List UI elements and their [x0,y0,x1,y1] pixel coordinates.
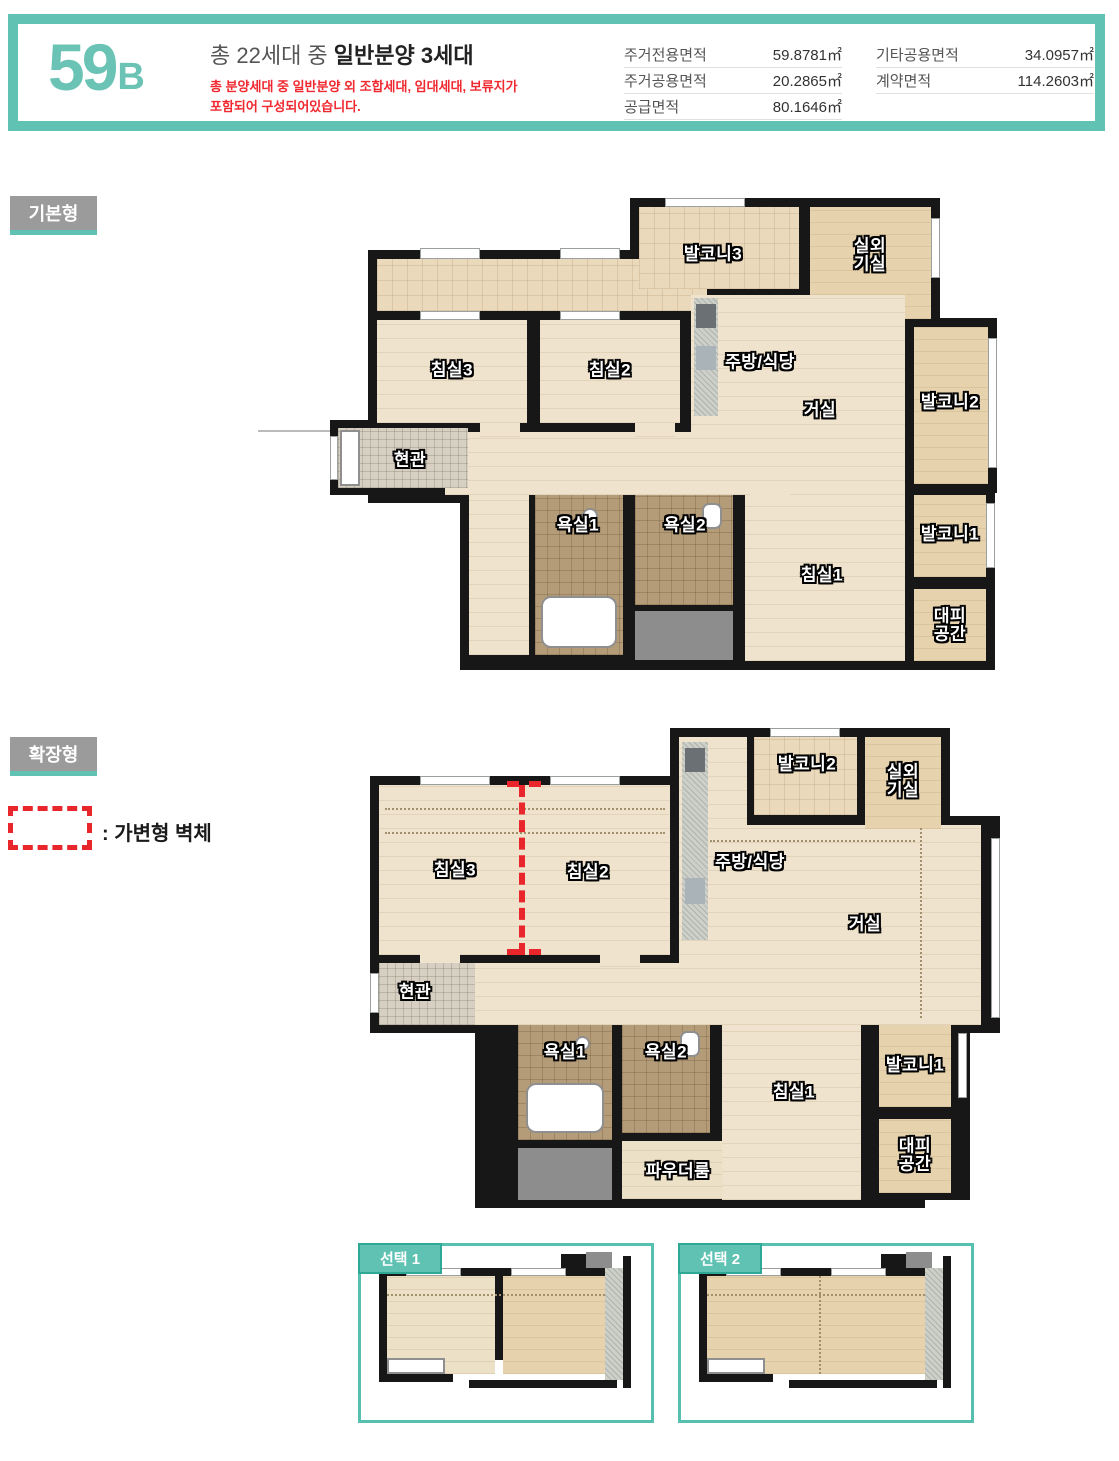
room-label-entrance: 현관 [399,978,431,1003]
area-label: 기타공용면적 [876,44,959,65]
unit-suffix: B [117,58,144,96]
window [665,198,745,207]
room-label-bedroom1: 침실1 [773,1078,815,1103]
option-box-2: 선택 2 [678,1243,974,1423]
floorplan-basic: 발코니3 실외기실 침실3 침실2 주방/식당 거실 발코니2 현관 욕실1 욕… [330,198,995,670]
duct-area [518,1148,612,1200]
unit-notice: 총 분양세대 중 일반분양 외 조합세대, 임대세대, 보류지가 포함되어 구성… [210,77,518,116]
window [420,248,480,259]
room-label-balcony2: 발코니2 [778,750,836,775]
wall [379,1268,387,1380]
stove-icon [685,748,705,772]
wall [699,1268,707,1380]
variable-wall-legend-swatch [8,806,92,850]
door-opening [635,423,675,437]
room-label-refuge: 대피공간 [895,1138,936,1175]
room-label-outdoor-unit: 실외기실 [883,764,924,801]
dashed-line [385,832,665,834]
stove-icon [696,304,716,328]
variable-wall-legend-label: : 가변형 벽체 [102,817,212,846]
bathtub-icon [526,1083,604,1133]
room-label-bath1: 욕실1 [544,1038,586,1063]
dashed-line [710,840,915,842]
unit-header: 59 B 총 22세대 중 일반분양 3세대 총 분양세대 중 일반분양 외 조… [8,14,1105,131]
room-label-bedroom2: 침실2 [589,356,631,381]
floorplan-extended: 발코니2 실외기실 침실3 침실2 주방/식당 거실 현관 욕실1 욕실2 침실… [360,728,1005,1208]
wall [789,1380,937,1388]
wall [699,1374,773,1382]
option-tab-1: 선택 1 [358,1243,442,1274]
wall-partition [495,1276,503,1360]
window [770,728,840,737]
area-value: 114.2603㎡ [1018,70,1094,91]
area-value: 80.1646㎡ [773,96,842,117]
floor-bedroom1 [722,1025,861,1200]
area-table-right: 기타공용면적 34.0957㎡ 계약면적 114.2603㎡ [876,42,1094,94]
dashed-line [920,828,922,1018]
closet [707,1358,765,1374]
room-label-refuge: 대피공간 [930,608,971,645]
room-label-kitchen-dining: 주방/식당 [715,848,785,873]
room-label-bedroom1: 침실1 [801,561,843,586]
duct-area [635,611,733,660]
window [986,503,995,568]
variable-wall-cap [507,781,541,787]
area-label: 주거전용면적 [624,44,707,65]
duct-area [906,1252,932,1268]
room-label-living: 거실 [804,396,836,421]
floor-hall [445,432,718,495]
window [988,338,997,468]
floor-kitchen-living [691,295,905,495]
area-row: 주거공용면적 20.2865㎡ [624,68,842,94]
option-tab-2: 선택 2 [678,1243,762,1274]
area-row: 기타공용면적 34.0957㎡ [876,42,1094,68]
wall [379,1374,453,1382]
room-label-bath1: 욕실1 [557,511,599,536]
dashed-line [707,1294,925,1296]
variable-wall-cap [507,949,541,955]
window [831,1268,886,1276]
room-label-balcony1: 발코니1 [886,1051,944,1076]
page: { "header": { "unit_code": { "number": "… [0,0,1119,1461]
section-line [258,430,330,432]
unit-title-prefix: 총 22세대 중 [210,43,334,68]
window [931,218,940,278]
area-row: 계약면적 114.2603㎡ [876,68,1094,94]
section-badge-extended: 확장형 [10,737,97,776]
room-label-living: 거실 [849,910,881,935]
sink-icon [696,346,716,370]
window [420,776,490,785]
entrance-door [330,436,338,480]
room-label-outdoor-unit: 실외기실 [850,238,891,275]
door-opening [480,423,520,437]
area-value: 34.0957㎡ [1025,44,1094,65]
area-row: 공급면적 80.1646㎡ [624,94,842,120]
room-label-bedroom3: 침실3 [434,856,476,881]
area-label: 주거공용면적 [624,70,707,91]
unit-notice-line2: 포함되어 구성되어있습니다. [210,97,518,117]
room-label-bedroom2: 침실2 [567,858,609,883]
kitchen-counter [925,1268,943,1380]
dashed-line [385,808,665,810]
area-value: 59.8781㎡ [773,44,842,65]
window [958,1033,967,1098]
unit-number: 59 [48,34,115,100]
floor-room-right [819,1276,925,1374]
unit-code: 59 B [48,34,145,100]
room-label-bedroom3: 침실3 [431,356,473,381]
wall [623,1256,631,1388]
window [991,838,1000,1018]
room-label-balcony1: 발코니1 [921,520,979,545]
room-label-bath2: 욕실2 [664,511,706,536]
wall [469,1380,617,1388]
window [550,776,620,785]
dashed-line [387,1294,605,1296]
closet [387,1358,445,1374]
bathtub-icon [541,596,617,648]
area-value: 20.2865㎡ [773,70,842,91]
area-label: 공급면적 [624,96,679,117]
section-badge-basic: 기본형 [10,196,97,235]
area-row: 주거전용면적 59.8781㎡ [624,42,842,68]
unit-title-emphasis: 일반분양 3세대 [334,43,474,68]
floor-lower-corridor [469,495,529,655]
room-label-bath2: 욕실2 [645,1038,687,1063]
variable-wall [519,785,525,955]
window [560,248,620,259]
entrance-door [370,973,379,1013]
area-table-left: 주거전용면적 59.8781㎡ 주거공용면적 20.2865㎡ 공급면적 80.… [624,42,842,120]
unit-title: 총 22세대 중 일반분양 3세대 총 분양세대 중 일반분양 외 조합세대, … [210,38,518,116]
room-label-balcony3: 발코니3 [684,240,742,265]
room-label-balcony2: 발코니2 [921,388,979,413]
area-label: 계약면적 [876,70,931,91]
duct-area [586,1252,612,1268]
unit-notice-line1: 총 분양세대 중 일반분양 외 조합세대, 임대세대, 보류지가 [210,77,518,97]
unit-title-line: 총 22세대 중 일반분양 3세대 [210,38,518,70]
room-label-powder-room: 파우더룸 [646,1157,711,1182]
window [511,1268,566,1276]
sink-icon [685,878,705,904]
kitchen-counter [605,1268,623,1380]
floor-room-right [503,1276,605,1374]
window [560,311,620,320]
room-label-kitchen-dining: 주방/식당 [725,348,795,373]
room-label-entrance: 현관 [394,446,426,471]
option-box-1: 선택 1 [358,1243,654,1423]
shoe-closet [340,430,360,486]
dashed-line [819,1276,821,1374]
wall [943,1256,951,1388]
window [420,311,480,320]
door-opening [600,953,640,967]
